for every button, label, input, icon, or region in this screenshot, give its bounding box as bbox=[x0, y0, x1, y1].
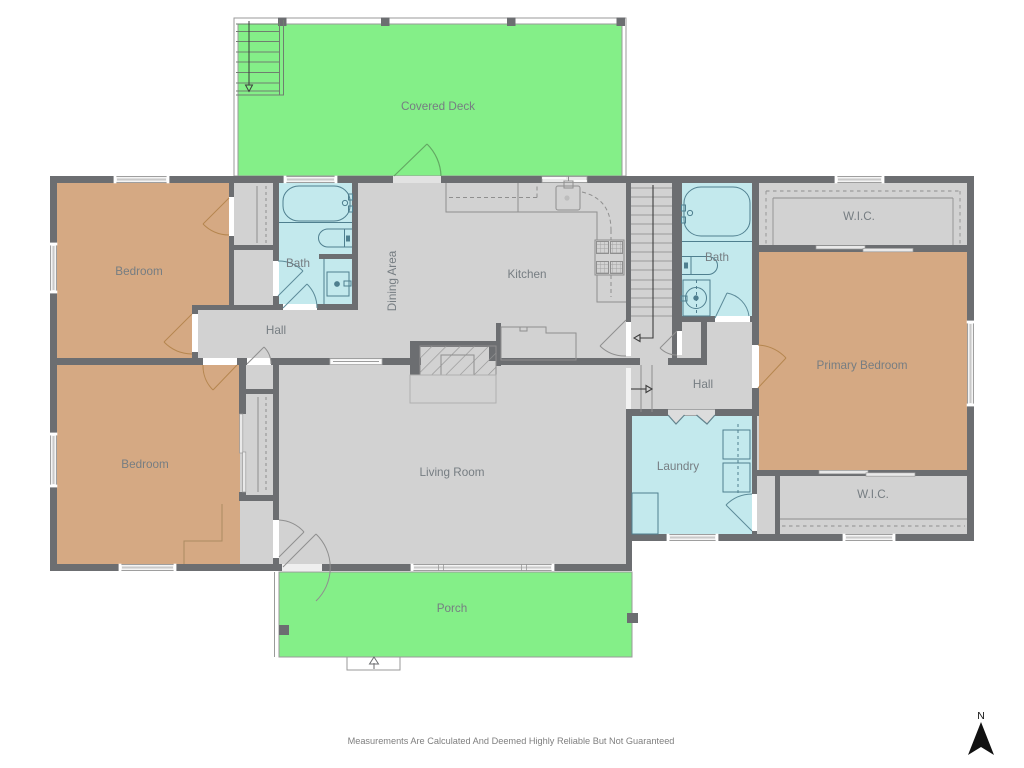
svg-text:Bedroom: Bedroom bbox=[121, 458, 168, 471]
svg-text:W.I.C.: W.I.C. bbox=[857, 488, 889, 501]
svg-text:N: N bbox=[977, 710, 985, 722]
svg-text:Primary Bedroom: Primary Bedroom bbox=[817, 359, 908, 372]
svg-text:W.I.C.: W.I.C. bbox=[843, 210, 875, 223]
svg-text:Laundry: Laundry bbox=[657, 460, 699, 473]
svg-text:Bath: Bath bbox=[705, 251, 729, 264]
svg-text:Measurements Are Calculated An: Measurements Are Calculated And Deemed H… bbox=[348, 736, 675, 746]
svg-text:Covered Deck: Covered Deck bbox=[401, 100, 475, 113]
svg-text:Bedroom: Bedroom bbox=[115, 265, 162, 278]
svg-text:Dining Area: Dining Area bbox=[386, 250, 399, 311]
svg-text:Porch: Porch bbox=[437, 602, 468, 615]
svg-text:Hall: Hall bbox=[693, 378, 713, 391]
svg-text:Bath: Bath bbox=[286, 257, 310, 270]
svg-text:Living Room: Living Room bbox=[420, 466, 485, 479]
svg-text:Hall: Hall bbox=[266, 324, 286, 337]
svg-text:Kitchen: Kitchen bbox=[508, 268, 547, 281]
